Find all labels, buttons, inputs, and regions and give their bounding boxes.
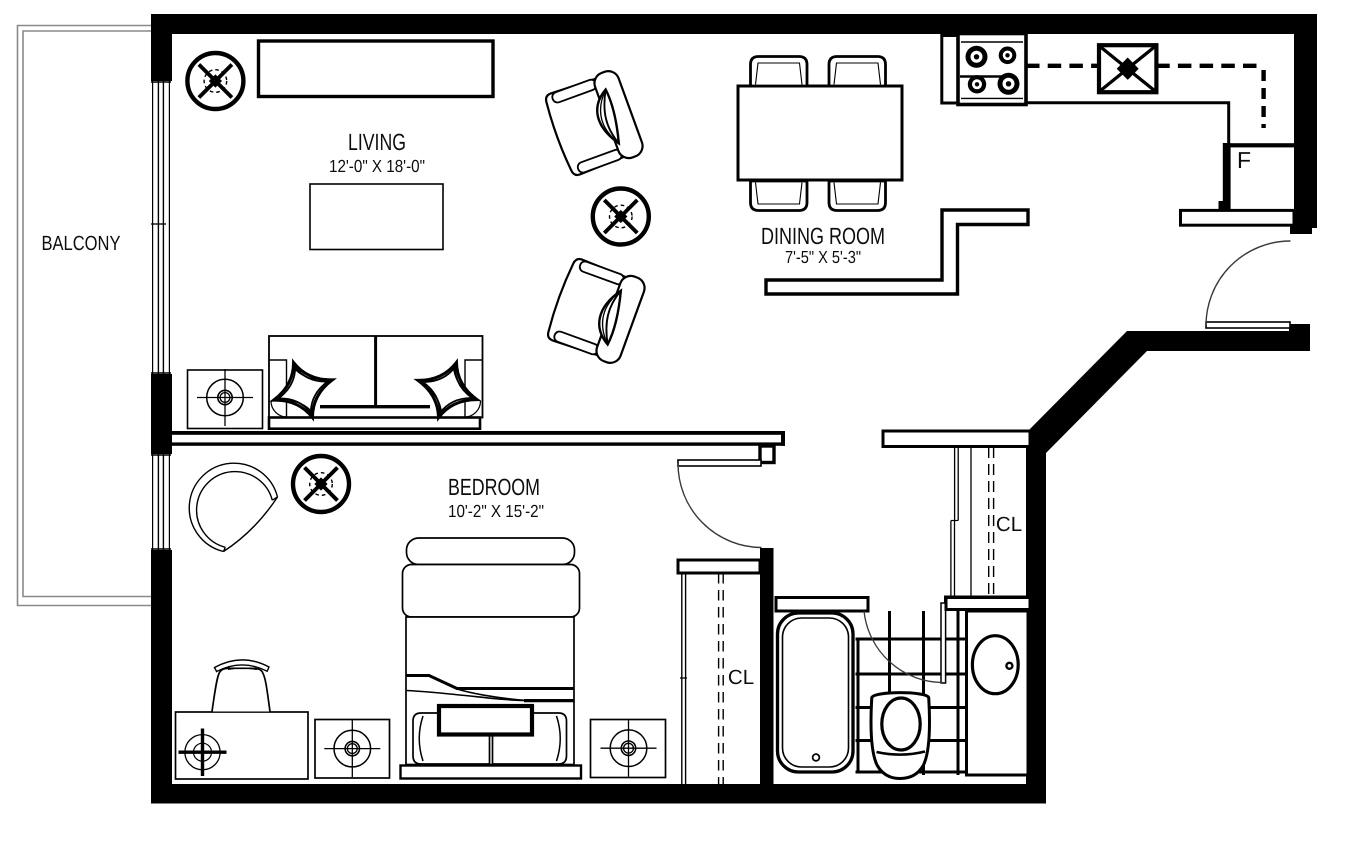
- svg-text:CL: CL: [728, 666, 754, 689]
- svg-text:CL: CL: [996, 513, 1022, 536]
- svg-text:7'-5" X 5'-3": 7'-5" X 5'-3": [785, 247, 861, 267]
- svg-text:10'-2" X 15'-2": 10'-2" X 15'-2": [448, 501, 544, 521]
- svg-text:12'-0" X 18'-0": 12'-0" X 18'-0": [329, 156, 425, 176]
- svg-text:DINING ROOM: DINING ROOM: [761, 223, 885, 249]
- svg-text:BEDROOM: BEDROOM: [448, 474, 540, 500]
- svg-text:BALCONY: BALCONY: [42, 232, 121, 255]
- svg-text:LIVING: LIVING: [348, 129, 406, 155]
- svg-text:F: F: [1237, 147, 1251, 173]
